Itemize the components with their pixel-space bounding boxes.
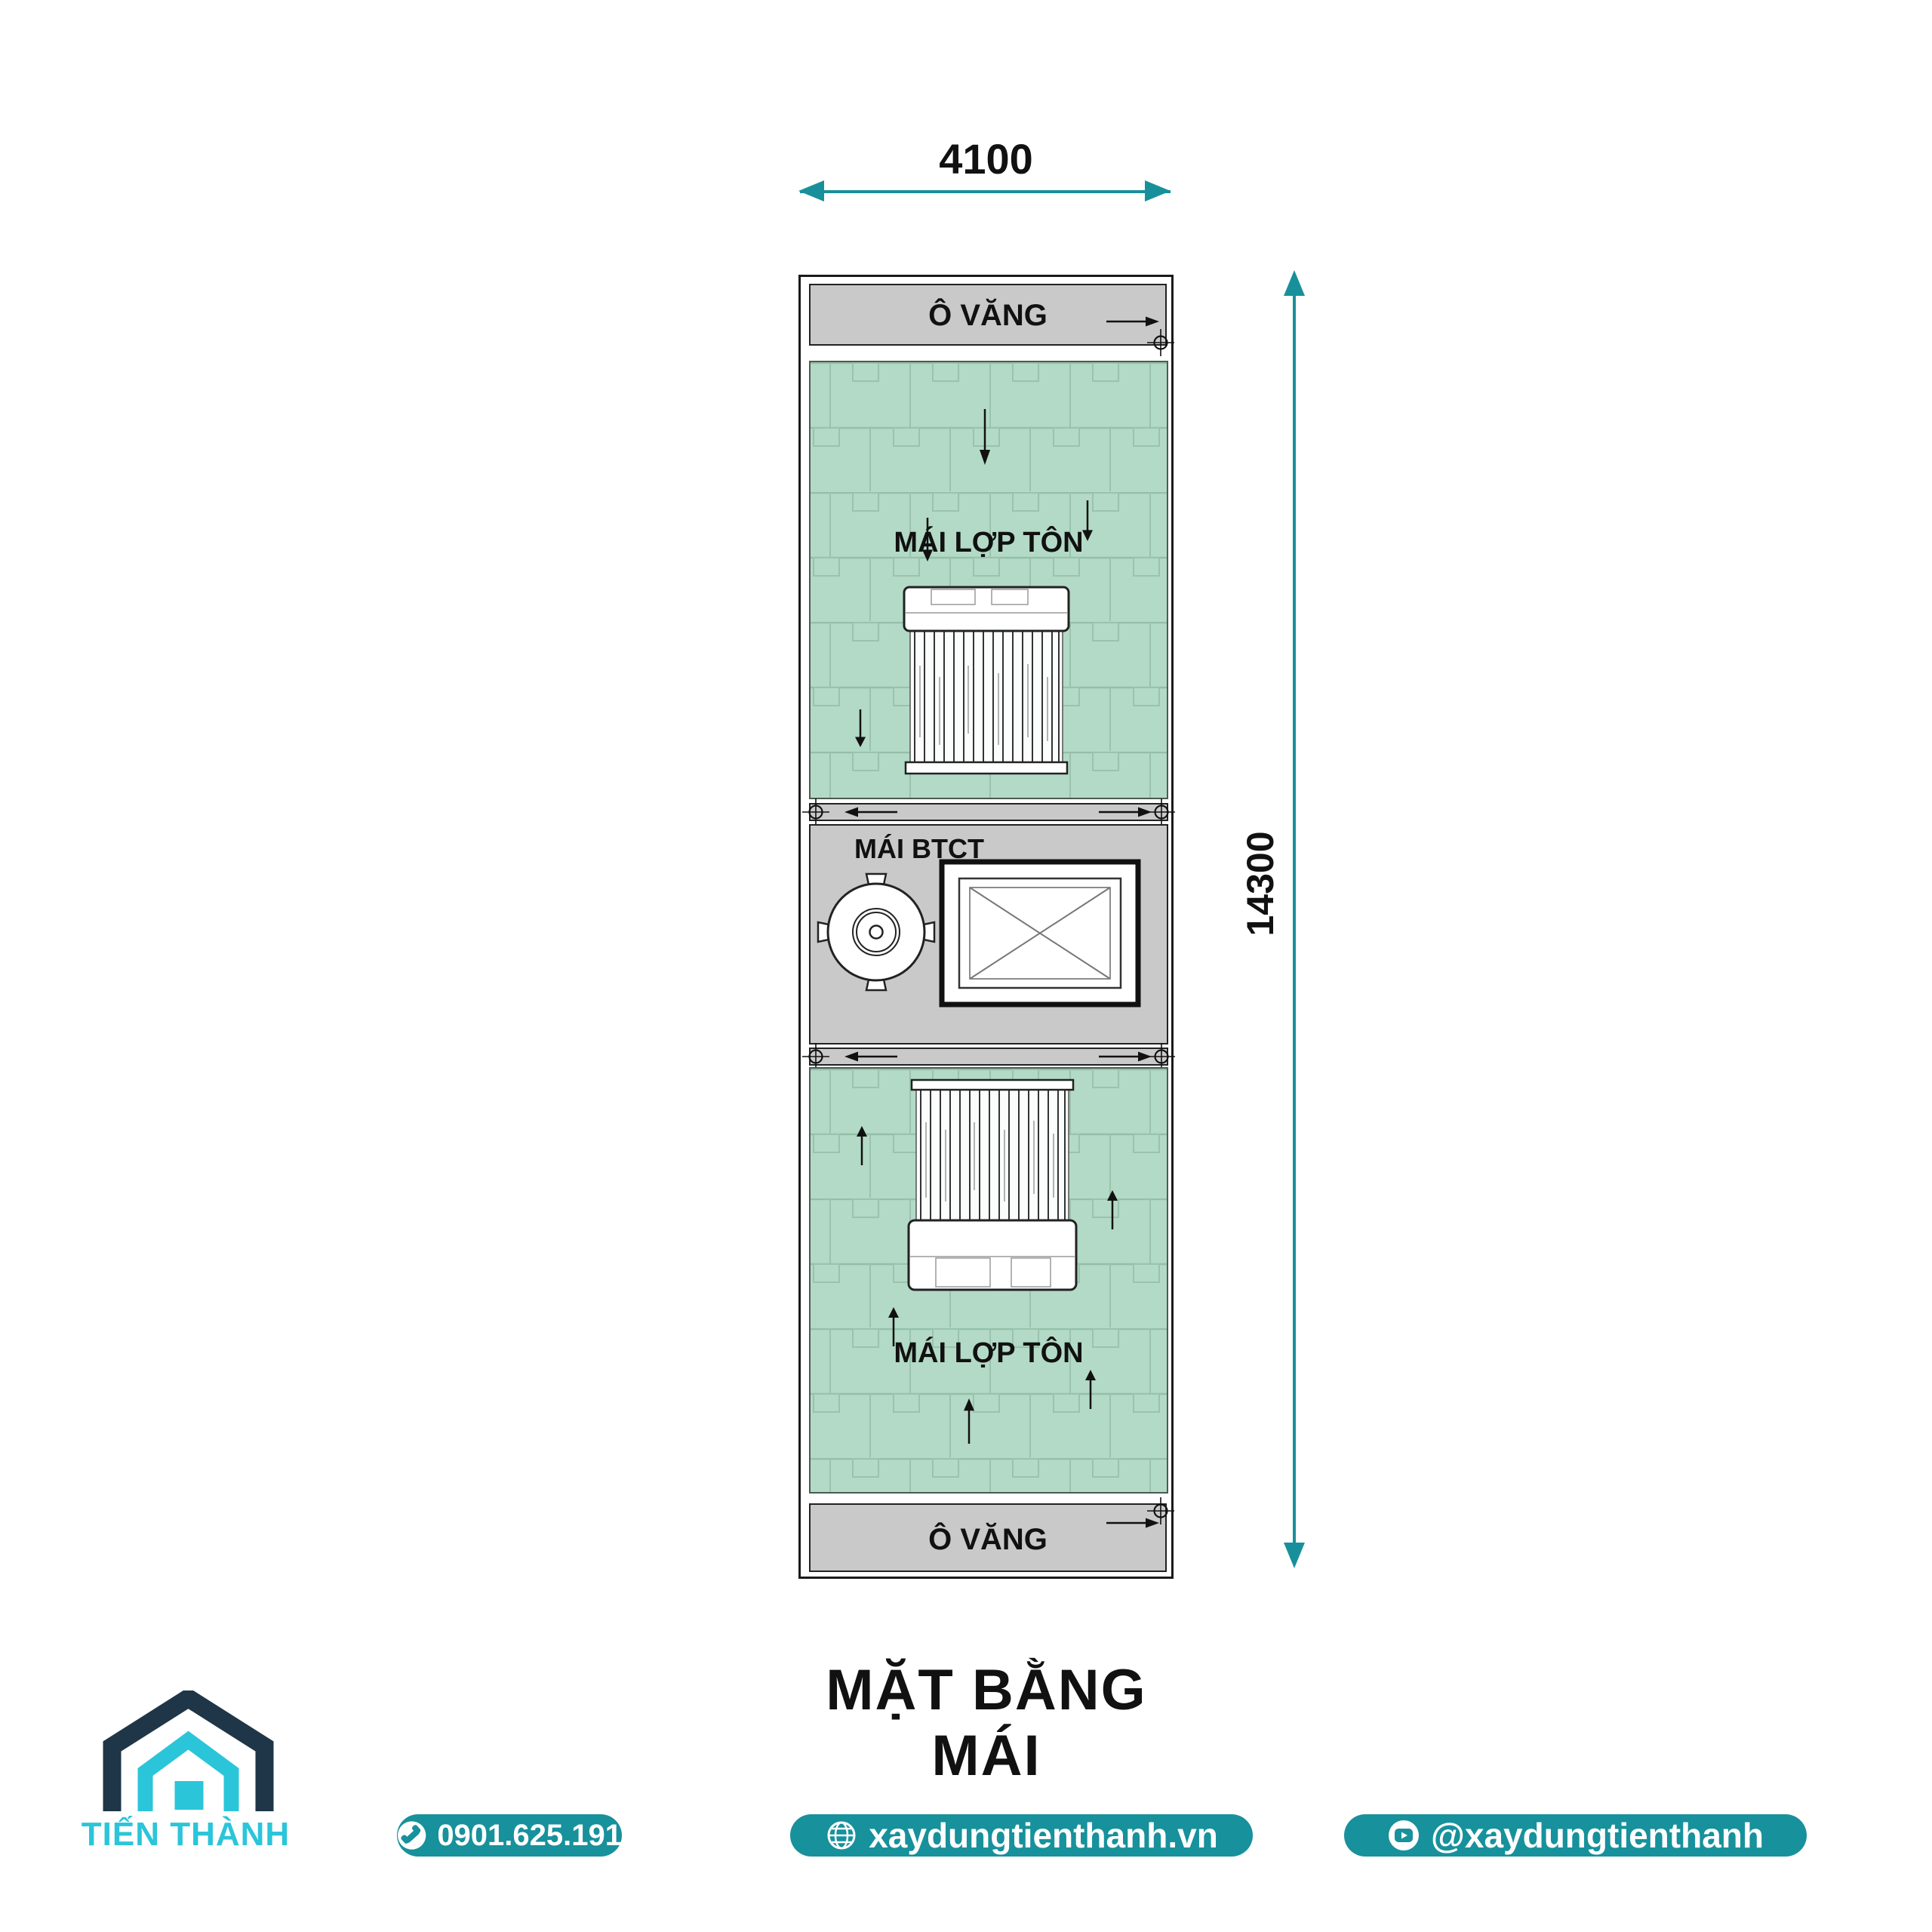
concrete-roof-band-top — [809, 803, 1168, 821]
flow-arrow-left-icon — [844, 1049, 899, 1064]
website-url: xaydungtienthanh.vn — [869, 1815, 1218, 1856]
social-contact-pill[interactable]: @xaydungtienthanh — [1344, 1814, 1807, 1857]
phone-contact-pill[interactable]: 0901.625.191 — [397, 1814, 622, 1857]
website-contact-pill[interactable]: xaydungtienthanh.vn — [790, 1814, 1253, 1857]
globe-icon — [825, 1819, 858, 1852]
solar-water-heater — [900, 583, 1073, 777]
crosshair-icon — [802, 1043, 829, 1070]
building-outline: Ô VĂNG — [798, 275, 1174, 1579]
awning-top: Ô VĂNG — [809, 284, 1167, 346]
slope-arrow-down-icon — [853, 709, 868, 747]
flow-arrow-right-icon — [1097, 804, 1152, 820]
youtube-icon — [1387, 1819, 1420, 1852]
crosshair-icon — [1148, 1043, 1175, 1070]
crosshair-icon — [1148, 798, 1175, 826]
flow-arrow-right-icon — [1105, 314, 1159, 329]
crosshair-icon — [1147, 1497, 1174, 1524]
roof-section-top: MÁI LỢP TÔN — [809, 361, 1168, 799]
flow-arrow-right-icon — [1097, 1049, 1152, 1064]
concrete-roof-band-bottom — [809, 1048, 1168, 1066]
roof-section-bottom: MÁI LỢP TÔN — [809, 1067, 1168, 1494]
page-title: MẶT BẰNG MÁI — [780, 1657, 1193, 1789]
dimension-height-arrow — [1293, 276, 1296, 1546]
roof-plan-page: 4100 14300 Ô VĂNG — [0, 0, 1932, 1932]
dimension-arrowhead-down-icon — [1284, 1543, 1305, 1568]
roof-bottom-label: MÁI LỢP TÔN — [811, 1337, 1167, 1370]
slope-arrow-up-icon — [854, 1126, 869, 1165]
dimension-height-label: 14300 — [1238, 831, 1283, 937]
company-name: TIẾN THÀNH — [72, 1816, 299, 1854]
company-logo — [92, 1690, 285, 1819]
dimension-width-label: 4100 — [798, 134, 1174, 183]
solar-water-heater — [906, 1077, 1081, 1296]
dimension-arrowhead-left-icon — [798, 180, 824, 202]
slope-arrow-up-icon — [1083, 1370, 1098, 1409]
phone-icon — [397, 1820, 426, 1850]
dimension-width-arrow — [800, 190, 1171, 193]
phone-number: 0901.625.191 — [437, 1819, 622, 1853]
awning-bottom: Ô VĂNG — [809, 1503, 1167, 1572]
dimension-arrowhead-right-icon — [1145, 180, 1171, 202]
dimension-arrowhead-up-icon — [1284, 270, 1305, 296]
water-tank — [812, 868, 940, 996]
roof-top-label: MÁI LỢP TÔN — [811, 527, 1167, 559]
slope-arrow-up-icon — [961, 1398, 977, 1444]
skylight-opening — [939, 859, 1141, 1008]
house-logo-icon — [92, 1690, 285, 1815]
slope-arrow-down-icon — [977, 409, 992, 465]
social-handle: @xaydungtienthanh — [1431, 1815, 1764, 1856]
slope-arrow-up-icon — [1105, 1190, 1120, 1229]
crosshair-icon — [1147, 329, 1174, 356]
flow-arrow-left-icon — [844, 804, 899, 820]
concrete-roof-section: MÁI BTCT — [809, 824, 1168, 1044]
crosshair-icon — [802, 798, 829, 826]
